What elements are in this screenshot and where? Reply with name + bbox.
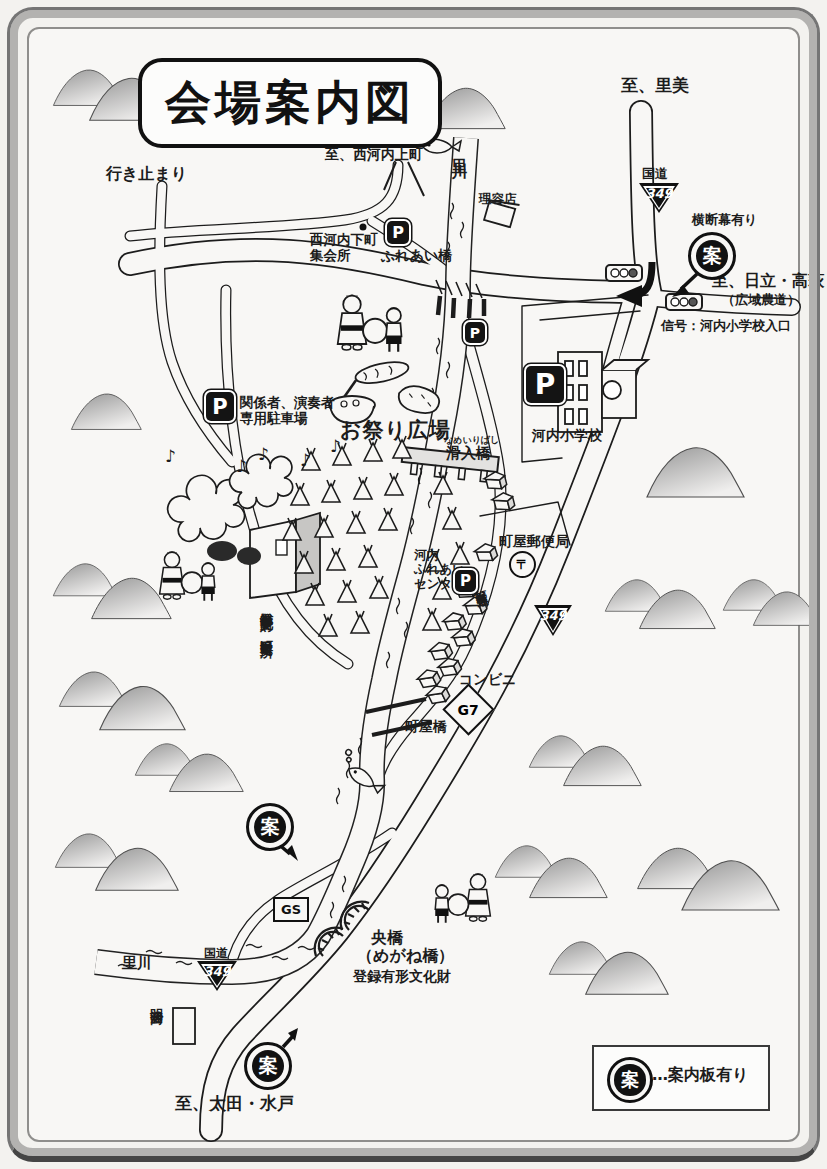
dir-oota-mito: 至、太田・水戸	[175, 1094, 294, 1114]
guide-board-badge-mid: 案	[246, 803, 294, 851]
dir-hitachi-takahagi: 至、日立・高萩	[712, 272, 824, 290]
machiya-bridge-label: 町屋橋	[405, 718, 447, 734]
reserved-parking-label: 関係者、演奏者 専用駐車場	[240, 395, 335, 426]
parking-badge-school: P	[526, 366, 564, 403]
map-page: ♪ ♪ ♪ ♪ ♪ 会場案内図 至、里美 行き止まり 至、西河内上町 至、日立・…	[0, 0, 827, 1169]
map-title-box: 会場案内図	[138, 58, 442, 148]
parking-badge-plaza: P	[465, 322, 485, 343]
barber-label: 理容店	[479, 192, 517, 206]
post-office-label: 町屋郵便局	[499, 533, 569, 549]
meeting-hall-label: 西河内下町 集会所	[310, 232, 378, 263]
meeting-hall-dot	[360, 224, 367, 231]
river-label-satogawa-upper: 里川	[450, 146, 468, 154]
banner-note: 横断幕有り	[692, 213, 757, 228]
legend-box: 案 …案内板有り	[592, 1045, 770, 1111]
guide-board-badge-top: 案	[688, 232, 736, 280]
post-office-mark: 〒	[509, 551, 536, 578]
dir-satomi: 至、里美	[621, 76, 689, 96]
mountain-icons	[53, 70, 819, 994]
guide-board-badge-legend: 案	[607, 1057, 653, 1103]
food-icons	[329, 358, 442, 423]
svg-text:♪: ♪	[236, 456, 247, 476]
dir-kouiki-noudou: （広域農道）	[722, 293, 800, 308]
river-label-satogawa-lower: 里川	[122, 955, 152, 972]
svg-text:♪: ♪	[165, 446, 176, 466]
fureai-bridge-label: ふれあい橋	[381, 247, 452, 263]
svg-text:♪: ♪	[258, 444, 269, 464]
gas-station-badge: GS	[273, 897, 309, 922]
meiji-shokai-label: 明治商会	[148, 998, 163, 1002]
parking-badge-fureai: P	[387, 221, 409, 244]
kokudo-label-bottom: 国道	[204, 947, 228, 961]
route-349-badge-mid: 349	[534, 605, 572, 636]
parking-badge-reserved: P	[206, 392, 234, 421]
ohashi-label: 央橋	[371, 929, 403, 947]
dir-dead-end: 行き止まり	[106, 165, 187, 183]
route-349-badge-top: 349	[639, 183, 679, 213]
route-349-badge-bottom: 349	[197, 961, 237, 991]
festival-square-label: お祭り広場	[340, 418, 451, 442]
signal-note: 信号：河内小学校入口	[661, 319, 791, 334]
meganebashi-label: （めがね橋）	[357, 947, 454, 965]
guide-board-badge-bottom: 案	[244, 1042, 292, 1090]
svg-text:♪: ♪	[300, 450, 311, 470]
namerii-bridge-label: 滑入橋	[446, 445, 491, 462]
page-title: 会場案内図	[165, 72, 415, 134]
heritage-lower-label: 登録有形文化財	[353, 968, 451, 984]
dir-nishikawachi-kamimachi: 至、西河内上町	[325, 146, 423, 162]
kokudo-label-top: 国道	[642, 167, 668, 182]
legend-text: …案内板有り	[652, 1066, 748, 1084]
meiji-building	[173, 1008, 195, 1044]
heritage-substation-label: 登録有形文化財 旧町屋変電所	[258, 602, 273, 712]
school-label: 河内小学校	[532, 427, 602, 443]
